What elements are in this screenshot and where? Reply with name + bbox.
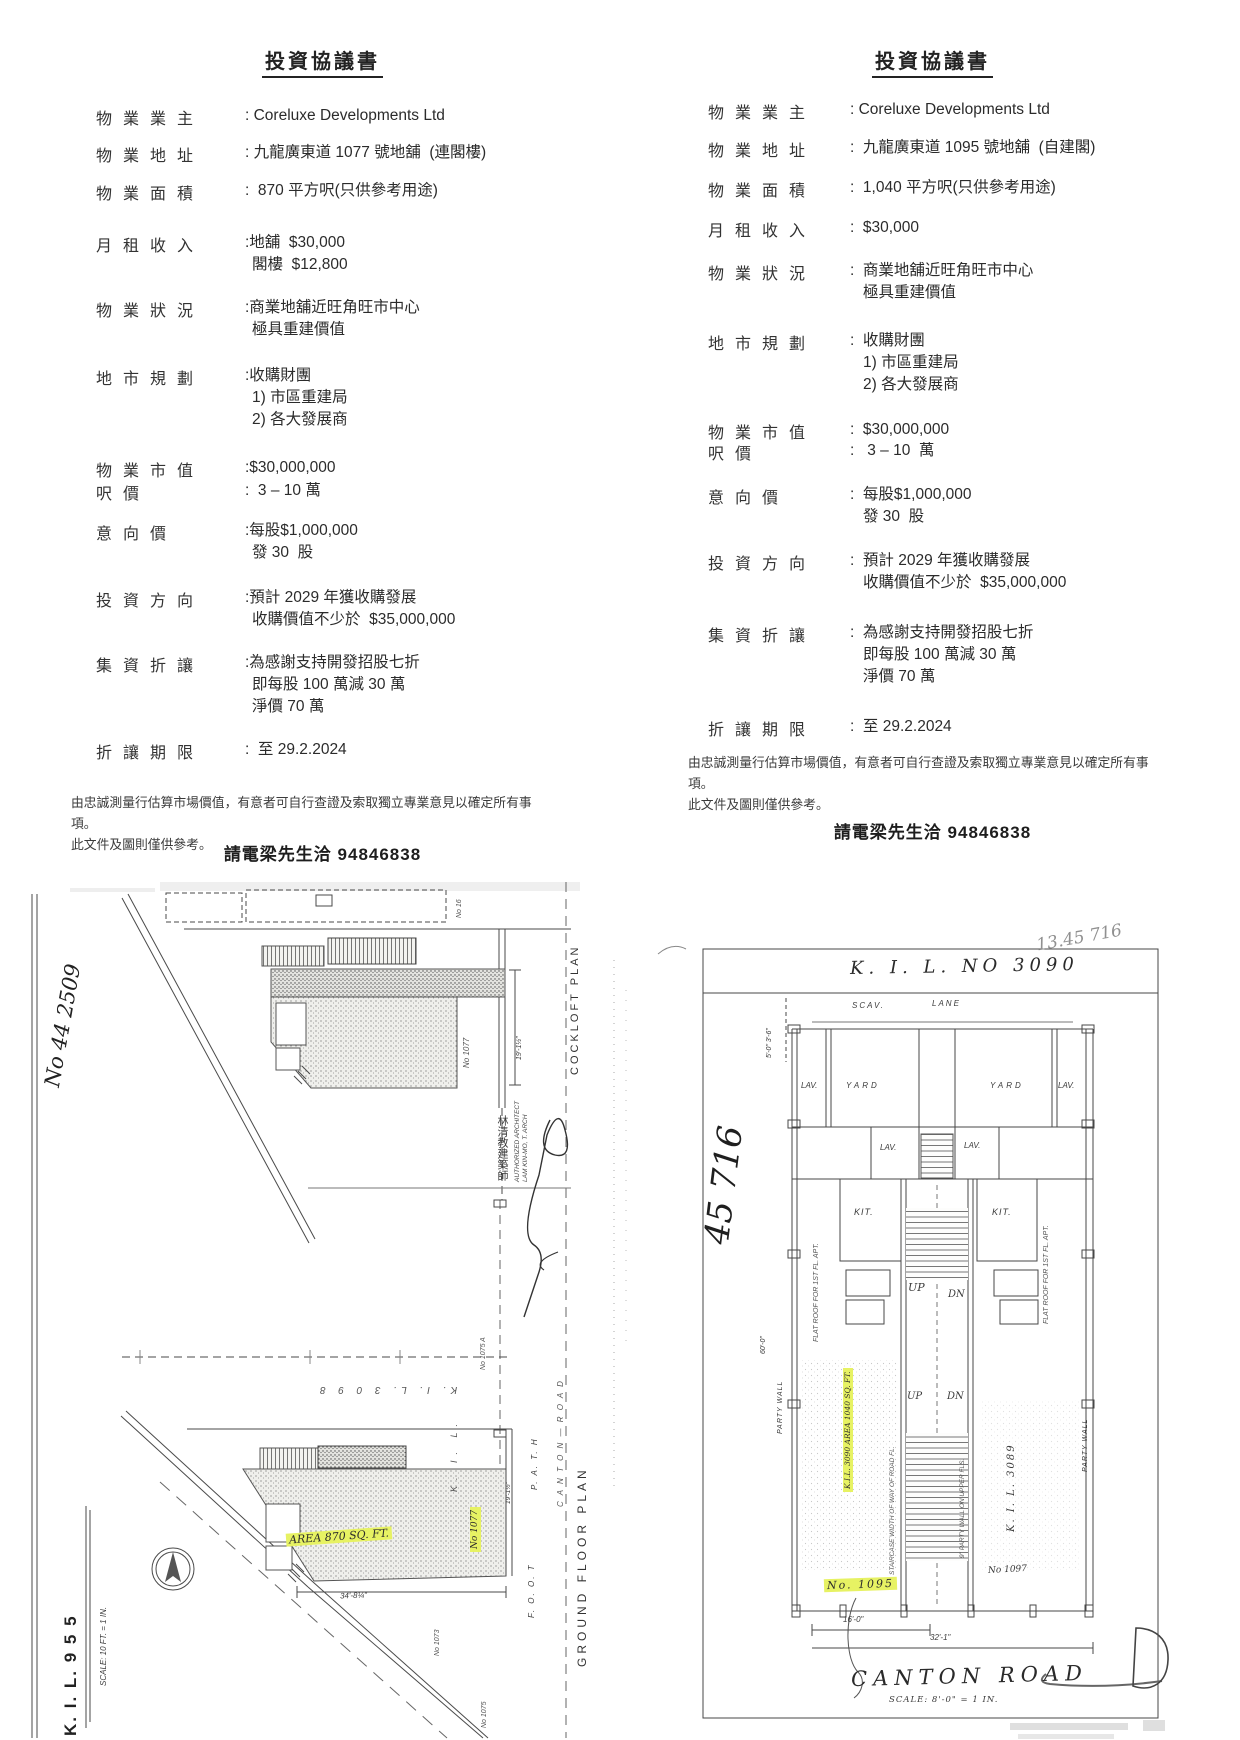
field-value: : 1,040 平方呎(只供參考用途) — [850, 177, 1056, 199]
foot-label: F. O. O. T — [528, 1563, 536, 1618]
field-label: 物業地址 — [96, 142, 245, 166]
kil-letters: K. I. L. — [450, 1418, 459, 1492]
dn-label: DN — [948, 1290, 965, 1300]
field-value: 收購價值不少於 $35,000,000 — [850, 572, 1066, 594]
field-label: 地市規劃 — [708, 330, 850, 396]
field-value: 極具重建價值 — [245, 319, 420, 341]
scanned-page: 投資協議書 物業業主: Coreluxe Developments Ltd 物業… — [0, 0, 1240, 1740]
field-label: 投資方向 — [708, 550, 850, 594]
field-value: :商業地舖近旺角旺市中心 — [245, 297, 420, 319]
lot-label-1077: No 1077 — [463, 1038, 471, 1068]
floor-plan-left-linework — [10, 870, 595, 1740]
doc-title-text: 投資協議書 — [262, 45, 383, 78]
field-row: 投資方向:預計 2029 年獲收購發展收購價值不少於 $35,000,000 — [96, 587, 455, 631]
dimension-34ft: 34'-8¼" — [340, 1592, 367, 1601]
field-value: : $30,000 — [850, 217, 919, 239]
field-label: 物業市值 — [96, 457, 245, 481]
flat-roof-note: FLAT ROOF FOR 1ST FL. APT. — [1043, 1225, 1050, 1324]
field-row: 物業市值:$30,000,000 — [96, 457, 336, 481]
architect-name-chinese: 林清教建築師 — [496, 1115, 507, 1181]
kitchen-label: KIT. — [992, 1208, 1012, 1217]
dimension-19ft-ground: 19'-1½" — [506, 1482, 513, 1504]
field-value: :為感謝支持開發招股七折 — [245, 652, 420, 674]
field-label: 呎價 — [96, 480, 245, 504]
cockloft-plan-label: COCKLOFT PLAN — [570, 945, 581, 1076]
field-row: 地市規劃: 收購財團1) 市區重建局2) 各大發展商 — [708, 330, 959, 396]
staircase-note: STAIRCASE WIDTH OF WAY OF ROAD FL. — [890, 1446, 897, 1575]
lot-label-1075: No 1075 — [481, 1702, 488, 1728]
floor-plan-right-linework — [600, 930, 1180, 1740]
field-row: 月租收入:地舖 $30,000閣樓 $12,800 — [96, 232, 348, 276]
field-label: 折讓期限 — [96, 739, 245, 763]
field-value: : 至 29.2.2024 — [245, 739, 347, 761]
field-row: 折讓期限: 至 29.2.2024 — [708, 716, 952, 740]
field-row: 意向價: 每股$1,000,000發 30 股 — [708, 484, 972, 528]
field-label: 物業面積 — [708, 177, 850, 201]
dimension-60ft: 60'-0" — [760, 1336, 767, 1354]
field-label: 物業面積 — [96, 180, 245, 204]
disclaimer-line: 由忠誠測量行估算市場價值，有意者可自行查證及索取獨立專業意見以確定所有事項。 — [71, 792, 557, 834]
doc-title: 投資協議書 — [700, 45, 1165, 78]
yard-label: YARD — [990, 1082, 1024, 1090]
field-label: 月租收入 — [708, 217, 850, 241]
lot-label-1075a: No 1075 A — [480, 1337, 487, 1370]
up-label: UP — [907, 1392, 922, 1402]
lot-label-kil955: K. I. L. 9 5 5 — [62, 1614, 79, 1736]
field-label: 集資折讓 — [708, 622, 850, 688]
dn-label: DN — [947, 1392, 964, 1402]
field-row: 呎價: 3 – 10 萬 — [96, 480, 321, 504]
field-row: 物業業主: Coreluxe Developments Ltd — [96, 105, 445, 129]
ground-floor-plan-label: GROUND FLOOR PLAN — [576, 1466, 588, 1667]
architect-name-line1: AUTHORIZED ARCHITECT — [515, 1101, 522, 1182]
dimension-32ft: 32'-1" — [930, 1634, 950, 1642]
field-value: 即每股 100 萬減 30 萬 — [245, 674, 420, 696]
party-wall-note: 9" PARTY WALL ON UPPER FLS. — [960, 1459, 967, 1558]
field-value: 2) 各大發展商 — [850, 374, 959, 396]
field-value: :收購財團 — [245, 365, 348, 387]
field-value: : 3 – 10 萬 — [850, 440, 934, 462]
lot-label-16: No 16 — [456, 899, 463, 918]
dimension-19ft: 19'-1½" — [516, 1036, 523, 1060]
doc-title: 投資協議書 — [70, 45, 575, 78]
field-value: 2) 各大發展商 — [245, 409, 348, 431]
field-value: :$30,000,000 — [245, 457, 336, 479]
field-value: : 九龍廣東道 1095 號地舖 (自建閣) — [850, 137, 1095, 159]
flat-roof-note: FLAT ROOF FOR 1ST FL. APT. — [813, 1243, 820, 1342]
party-wall-label: PARTY WALL — [777, 1381, 784, 1434]
field-label: 月租收入 — [96, 232, 245, 276]
field-value: : 商業地舖近旺角旺市中心 — [850, 260, 1033, 282]
field-value: :預計 2029 年獲收購發展 — [245, 587, 455, 609]
drawing-title-kil3090: K. I. L. NO 3090 — [850, 956, 1079, 978]
field-row: 集資折讓: 為感謝支持開發招股七折即每股 100 萬減 30 萬淨價 70 萬 — [708, 622, 1033, 688]
canton-road-label-left-drawing: C A N T O N — R O A D — [557, 1379, 565, 1507]
field-value: : 至 29.2.2024 — [850, 716, 952, 738]
field-value: 閣樓 $12,800 — [245, 254, 348, 276]
field-value: 1) 市區重建局 — [245, 387, 348, 409]
field-label: 物業地址 — [708, 137, 850, 161]
field-label: 地市規劃 — [96, 365, 245, 431]
lot-label-kil3089: K. I. L. 3089 — [1007, 1443, 1017, 1532]
field-value: : $30,000,000 — [850, 419, 949, 441]
doc-title-text: 投資協議書 — [872, 45, 993, 78]
field-label: 折讓期限 — [708, 716, 850, 740]
disclaimer: 由忠誠測量行估算市場價值，有意者可自行查證及索取獨立專業意見以確定所有事項。 此… — [688, 752, 1166, 815]
field-value: : Coreluxe Developments Ltd — [245, 105, 445, 127]
field-value: 發 30 股 — [245, 542, 358, 564]
floor-plan-left: COCKLOFT PLAN GROUND FLOOR PLAN K. I. L.… — [10, 870, 595, 1740]
field-row: 物業狀況: 商業地舖近旺角旺市中心極具重建價值 — [708, 260, 1033, 304]
scav-label: SCAV. — [852, 1002, 885, 1010]
agreement-doc-left: 投資協議書 物業業主: Coreluxe Developments Ltd 物業… — [70, 45, 575, 875]
field-value: 收購價值不少於 $35,000,000 — [245, 609, 455, 631]
field-row: 物業狀況:商業地舖近旺角旺市中心極具重建價值 — [96, 297, 420, 341]
dimension-top: 5'-0" 3'-6" — [766, 1028, 773, 1058]
field-label: 意向價 — [96, 520, 245, 564]
scale-note: SCALE: 8'-0" = 1 IN. — [889, 1696, 998, 1705]
field-value: : 870 平方呎(只供參考用途) — [245, 180, 438, 202]
field-value: : Coreluxe Developments Ltd — [850, 99, 1050, 121]
lot-highlight-1095: No. 1095 — [824, 1577, 897, 1593]
field-label: 意向價 — [708, 484, 850, 528]
contact-line: 請電梁先生洽 94846838 — [70, 840, 575, 865]
field-label: 物業業主 — [708, 99, 850, 123]
field-value: 淨價 70 萬 — [850, 666, 1033, 688]
field-value: : 收購財團 — [850, 330, 959, 352]
field-value: 發 30 股 — [850, 506, 972, 528]
field-row: 物業地址: 九龍廣東道 1077 號地舖 (連閣樓) — [96, 142, 486, 166]
disclaimer-line: 此文件及圖則僅供參考。 — [688, 794, 1166, 815]
floor-plan-right: K. I. L. NO 3090 13.45 716 45 716 SCAV. … — [600, 930, 1180, 1740]
field-label: 集資折讓 — [96, 652, 245, 718]
architect-name-line2: LAM KIN-MO, T. ARCH — [523, 1115, 530, 1182]
field-value: : 九龍廣東道 1077 號地舖 (連閣樓) — [245, 142, 486, 164]
field-row: 物業業主: Coreluxe Developments Ltd — [708, 99, 1050, 123]
lot-highlight-1077: No 1077 — [470, 1507, 481, 1552]
field-value: 即每股 100 萬減 30 萬 — [850, 644, 1033, 666]
field-value: : 3 – 10 萬 — [245, 480, 321, 502]
lot-label-kil3098: K. I. L. 3 0 9 8 — [315, 1384, 457, 1394]
field-row: 地市規劃:收購財團1) 市區重建局2) 各大發展商 — [96, 365, 348, 431]
field-value: 淨價 70 萬 — [245, 696, 420, 718]
field-row: 意向價:每股$1,000,000發 30 股 — [96, 520, 358, 564]
area-highlight-1040: K.I.L. 3090 AREA 1040 SQ. FT. — [843, 1368, 853, 1492]
field-row: 折讓期限: 至 29.2.2024 — [96, 739, 347, 763]
party-wall-label: PARTY WALL — [1082, 1419, 1089, 1472]
field-value: : 預計 2029 年獲收購發展 — [850, 550, 1066, 572]
scale-note: SCALE: 10 FT. = 1 IN. — [100, 1607, 108, 1686]
disclaimer-line: 由忠誠測量行估算市場價值，有意者可自行查證及索取獨立專業意見以確定所有事項。 — [688, 752, 1166, 794]
field-label: 物業狀況 — [708, 260, 850, 304]
field-row: 投資方向: 預計 2029 年獲收購發展收購價值不少於 $35,000,000 — [708, 550, 1066, 594]
lane-label: LANE — [932, 1000, 961, 1008]
field-label: 呎價 — [708, 440, 850, 464]
field-label: 物業業主 — [96, 105, 245, 129]
field-row: 月租收入: $30,000 — [708, 217, 919, 241]
field-row: 呎價: 3 – 10 萬 — [708, 440, 934, 464]
lot-label-1073: No 1073 — [434, 1630, 441, 1656]
field-label: 投資方向 — [96, 587, 245, 631]
field-row: 物業地址: 九龍廣東道 1095 號地舖 (自建閣) — [708, 137, 1095, 161]
lav-label: LAV. — [964, 1142, 980, 1150]
dimension-16ft: 16'-0" — [843, 1616, 863, 1624]
field-row: 物業面積: 870 平方呎(只供參考用途) — [96, 180, 438, 204]
field-value: 極具重建價值 — [850, 282, 1033, 304]
field-value: : 為感謝支持開發招股七折 — [850, 622, 1033, 644]
contact-line: 請電梁先生洽 94846838 — [700, 818, 1165, 843]
agreement-doc-right: 投資協議書 物業業主: Coreluxe Developments Ltd 物業… — [700, 45, 1165, 855]
lav-label: LAV. — [801, 1082, 817, 1090]
kitchen-label: KIT. — [854, 1208, 874, 1217]
field-value: : 每股$1,000,000 — [850, 484, 972, 506]
yard-label: YARD — [846, 1082, 880, 1090]
path-label: P. A. T. H — [531, 1437, 539, 1490]
field-row: 集資折讓:為感謝支持開發招股七折即每股 100 萬減 30 萬淨價 70 萬 — [96, 652, 420, 718]
field-row: 物業面積: 1,040 平方呎(只供參考用途) — [708, 177, 1056, 201]
field-label: 物業狀況 — [96, 297, 245, 341]
up-label: UP — [908, 1282, 925, 1293]
lav-label: LAV. — [1058, 1082, 1074, 1090]
field-value: :地舖 $30,000 — [245, 232, 348, 254]
field-value: :每股$1,000,000 — [245, 520, 358, 542]
lav-label: LAV. — [880, 1144, 896, 1152]
field-value: 1) 市區重建局 — [850, 352, 959, 374]
